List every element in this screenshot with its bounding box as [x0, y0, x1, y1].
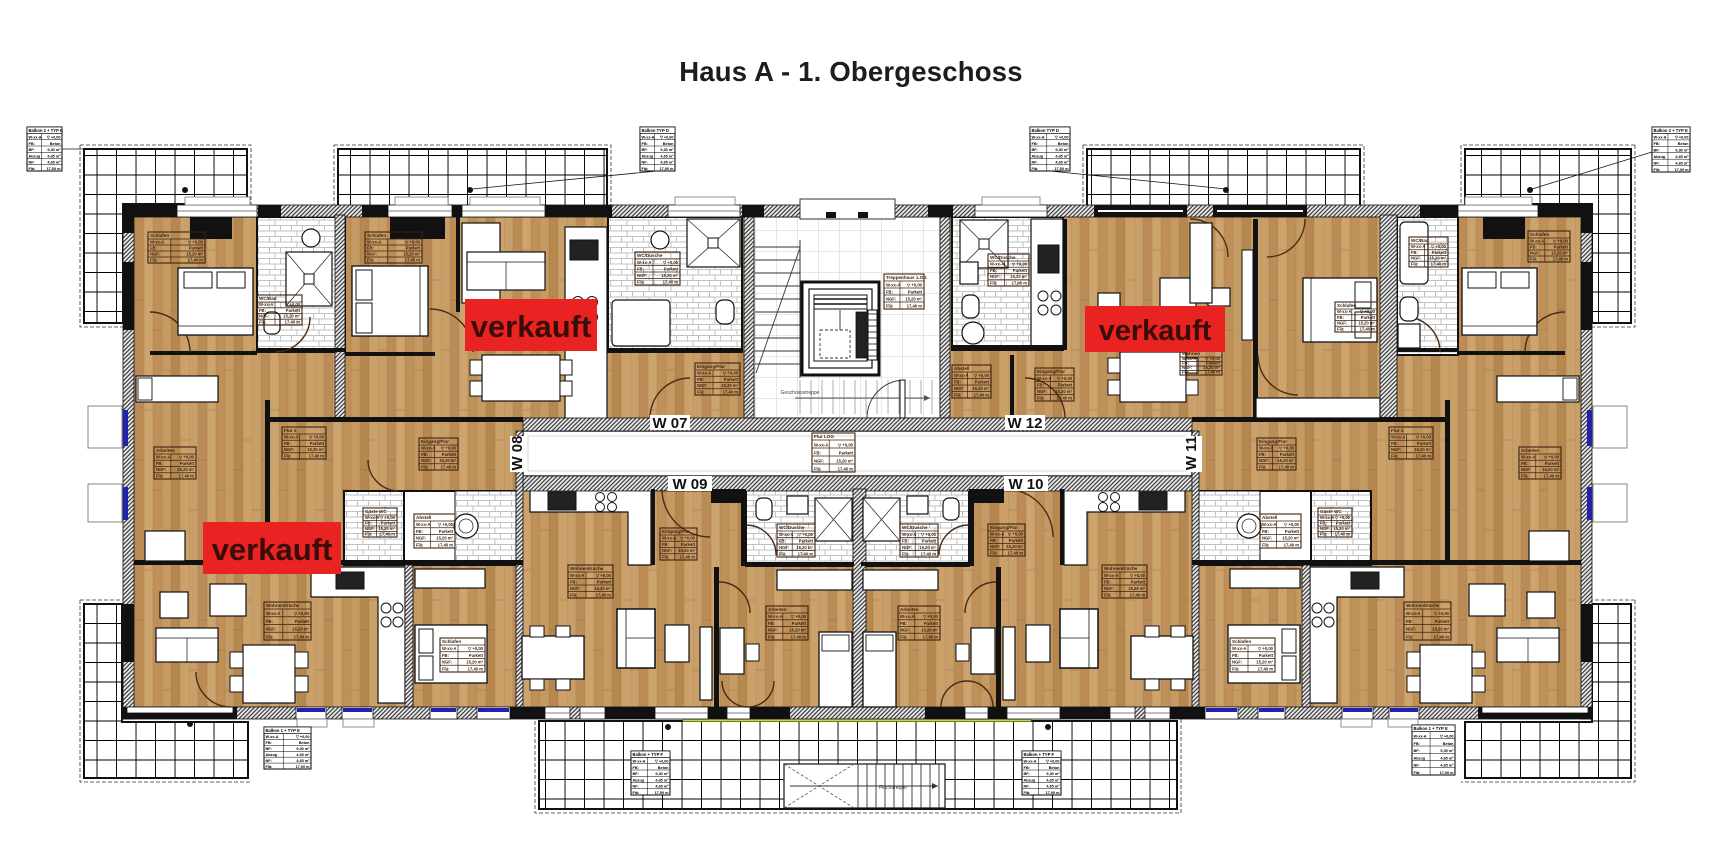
svg-text:Flä:: Flä:: [990, 280, 997, 285]
svg-text:FB:: FB:: [421, 452, 428, 457]
svg-text:Abzug: Abzug: [266, 753, 278, 757]
svg-text:17,40 m: 17,40 m: [723, 389, 739, 394]
svg-text:Schlafen: Schlafen: [150, 233, 169, 238]
svg-text:▽ +0,00: ▽ +0,00: [437, 522, 454, 527]
svg-text:▽ +0,00: ▽ +0,00: [1278, 446, 1295, 451]
svg-text:Parkett: Parkett: [189, 245, 204, 250]
svg-text:15,20 m²: 15,20 m²: [905, 296, 922, 301]
svg-text:Flä:: Flä:: [266, 765, 273, 769]
svg-text:NGF:: NGF:: [902, 545, 912, 550]
svg-text:NGF:: NGF:: [990, 274, 1000, 279]
svg-text:FB:: FB:: [1037, 382, 1044, 387]
svg-text:▽ +0,00: ▽ +0,00: [1045, 760, 1060, 764]
svg-text:BF:: BF:: [1414, 749, 1420, 753]
svg-text:15,20 m²: 15,20 m²: [436, 536, 453, 541]
svg-text:Eingang/Flur: Eingang/Flur: [421, 439, 449, 444]
svg-text:4,65 m²: 4,65 m²: [1675, 155, 1689, 159]
svg-text:Parkett: Parkett: [681, 542, 696, 547]
svg-text:BF:: BF:: [1654, 149, 1660, 153]
svg-text:15,20 m²: 15,20 m²: [1128, 586, 1145, 591]
svg-text:▽ +0,00: ▽ +0,00: [1674, 136, 1689, 140]
svg-text:Abstell: Abstell: [1262, 515, 1277, 520]
svg-text:4,65 m²: 4,65 m²: [1046, 785, 1060, 789]
svg-text:Beton: Beton: [658, 766, 669, 770]
svg-text:Beton: Beton: [1678, 142, 1689, 146]
svg-text:15,20 m²: 15,20 m²: [1282, 536, 1299, 541]
svg-text:Beton: Beton: [50, 142, 61, 146]
svg-text:15,20 m²: 15,20 m²: [721, 383, 738, 388]
svg-text:▽ +0,00: ▽ +0,00: [662, 260, 679, 265]
svg-text:WC/Dusche: WC/Dusche: [902, 525, 928, 530]
svg-text:15,20 m²: 15,20 m²: [466, 660, 483, 665]
svg-text:W-xx-A: W-xx-A: [284, 435, 298, 440]
svg-text:NGF:: NGF:: [150, 251, 160, 256]
svg-text:17,00 m: 17,00 m: [1675, 168, 1690, 172]
svg-text:15,20 m²: 15,20 m²: [921, 628, 938, 633]
svg-text:Flä:: Flä:: [1262, 542, 1269, 547]
svg-text:▽ +0,00: ▽ +0,00: [404, 239, 421, 244]
svg-text:15,20 m²: 15,20 m²: [919, 545, 936, 550]
svg-text:▽ +0,00: ▽ +0,00: [790, 614, 807, 619]
svg-text:4,65 m²: 4,65 m²: [1055, 154, 1069, 158]
svg-text:▽ +0,00: ▽ +0,00: [922, 614, 939, 619]
svg-text:Flä:: Flä:: [990, 550, 997, 555]
svg-text:Parkett: Parkett: [1432, 250, 1447, 255]
svg-text:NGF:: NGF:: [814, 458, 824, 463]
svg-text:▽ +0,00: ▽ +0,00: [467, 646, 484, 651]
svg-text:17,00 m: 17,00 m: [1440, 771, 1455, 775]
svg-text:17,40 m: 17,40 m: [1553, 256, 1569, 261]
svg-text:Balkon 2 + TYP E: Balkon 2 + TYP E: [1654, 128, 1688, 133]
svg-text:Flä:: Flä:: [1032, 167, 1039, 171]
svg-text:FB:: FB:: [150, 245, 157, 250]
svg-text:Flä:: Flä:: [637, 279, 644, 284]
svg-text:17,40 m: 17,40 m: [1130, 592, 1146, 597]
svg-text:Balkon 1 + TYP E: Balkon 1 + TYP E: [266, 728, 300, 733]
svg-text:▽ +0,00: ▽ +0,00: [1433, 611, 1450, 616]
svg-text:17,40 m: 17,40 m: [680, 554, 696, 559]
svg-text:BF:: BF:: [1032, 148, 1038, 152]
svg-text:15,20 m²: 15,20 m²: [1006, 544, 1023, 549]
svg-text:Geschossstreppe: Geschossstreppe: [781, 390, 820, 396]
svg-text:Eingang/Flur: Eingang/Flur: [1037, 369, 1065, 374]
svg-text:FB:: FB:: [266, 741, 272, 745]
svg-text:Haus A - 1. Obergeschoss: Haus A - 1. Obergeschoss: [679, 56, 1023, 87]
svg-text:9,30 m²: 9,30 m²: [1046, 772, 1060, 776]
svg-text:Flä:: Flä:: [416, 542, 423, 547]
svg-text:15,20 m²: 15,20 m²: [1542, 467, 1559, 472]
svg-text:W-xx-A: W-xx-A: [1521, 455, 1535, 460]
svg-text:W-xx-A: W-xx-A: [697, 371, 711, 376]
svg-text:4,65 m²: 4,65 m²: [655, 778, 669, 782]
svg-text:NGF:: NGF:: [259, 314, 269, 319]
svg-text:Beton: Beton: [299, 741, 310, 745]
svg-text:17,00 m: 17,00 m: [1046, 791, 1061, 795]
svg-text:Flä:: Flä:: [1654, 168, 1661, 172]
svg-text:FB:: FB:: [900, 621, 907, 626]
svg-text:▽ +0,00: ▽ +0,00: [837, 442, 854, 447]
svg-text:FB:: FB:: [1391, 441, 1398, 446]
svg-text:Parkett: Parkett: [439, 529, 454, 534]
svg-text:W-xx-A: W-xx-A: [266, 735, 279, 739]
svg-text:Schlafen: Schlafen: [367, 233, 386, 238]
svg-text:FB:: FB:: [156, 461, 163, 466]
svg-text:▽ +0,00: ▽ +0,00: [293, 611, 310, 616]
svg-text:NGF:: NGF:: [900, 628, 910, 633]
svg-text:9,30 m²: 9,30 m²: [1675, 149, 1689, 153]
svg-text:▽ +0,00: ▽ +0,00: [1334, 515, 1351, 520]
svg-text:4,65 m²: 4,65 m²: [47, 161, 61, 165]
svg-text:Parkett: Parkett: [1280, 452, 1295, 457]
svg-text:17,40 m: 17,40 m: [1544, 473, 1560, 478]
svg-text:17,40 m: 17,40 m: [1258, 666, 1274, 671]
svg-text:Flä:: Flä:: [1530, 256, 1537, 261]
svg-text:Parkett: Parkett: [1545, 461, 1560, 466]
svg-text:▽ +0,00: ▽ +0,00: [973, 373, 990, 378]
svg-text:NGF:: NGF:: [954, 386, 964, 391]
svg-text:NGF:: NGF:: [416, 536, 426, 541]
svg-text:15,20 m²: 15,20 m²: [1432, 627, 1449, 632]
svg-text:Eingang/Flur: Eingang/Flur: [1259, 439, 1287, 444]
svg-text:BF:: BF:: [633, 772, 639, 776]
svg-text:17,40 m: 17,40 m: [907, 303, 923, 308]
svg-text:17,40 m: 17,40 m: [791, 634, 807, 639]
svg-text:Arbeiten: Arbeiten: [768, 607, 787, 612]
svg-text:FB:: FB:: [1406, 619, 1413, 624]
svg-text:Flä:: Flä:: [779, 551, 786, 556]
svg-text:Flä:: Flä:: [662, 554, 669, 559]
svg-text:4,65 m²: 4,65 m²: [660, 154, 674, 158]
svg-text:FB:: FB:: [990, 268, 997, 273]
svg-text:FB:: FB:: [259, 308, 266, 313]
svg-text:NF:: NF:: [1654, 161, 1660, 165]
svg-text:FB:: FB:: [1414, 742, 1420, 746]
svg-text:Flä:: Flä:: [442, 666, 449, 671]
svg-text:Beton: Beton: [1049, 766, 1060, 770]
svg-text:▽ +0,00: ▽ +0,00: [679, 536, 696, 541]
svg-text:▽ +0,00: ▽ +0,00: [379, 515, 396, 520]
svg-text:W-xx-A: W-xx-A: [900, 614, 914, 619]
svg-text:Flä:: Flä:: [886, 303, 893, 308]
svg-text:▽ +0,00: ▽ +0,00: [1011, 262, 1028, 267]
svg-text:NGF:: NGF:: [1391, 447, 1401, 452]
svg-text:9,30 m²: 9,30 m²: [1055, 148, 1069, 152]
svg-text:Beton: Beton: [663, 142, 674, 146]
svg-text:15,20 m²: 15,20 m²: [1055, 389, 1072, 394]
svg-text:NGF:: NGF:: [365, 526, 375, 531]
svg-text:▽ +0,00: ▽ +0,00: [906, 282, 923, 287]
svg-text:17,40 m: 17,40 m: [179, 473, 195, 478]
svg-text:NGF:: NGF:: [1232, 660, 1242, 665]
svg-text:WC/Dusche: WC/Dusche: [779, 525, 805, 530]
svg-text:Abstell: Abstell: [954, 366, 969, 371]
svg-text:NF:: NF:: [1024, 785, 1030, 789]
svg-text:15,20 m²: 15,20 m²: [283, 314, 300, 319]
svg-text:9,30 m²: 9,30 m²: [296, 747, 310, 751]
svg-text:4,65 m²: 4,65 m²: [655, 785, 669, 789]
svg-text:NF:: NF:: [633, 785, 639, 789]
svg-text:4,65 m²: 4,65 m²: [296, 759, 310, 763]
svg-text:Abstell: Abstell: [416, 515, 431, 520]
svg-text:15,20 m²: 15,20 m²: [307, 447, 324, 452]
svg-text:Schlafen: Schlafen: [1530, 232, 1549, 237]
svg-text:W-xx-A: W-xx-A: [1032, 136, 1045, 140]
svg-text:FB:: FB:: [365, 520, 372, 525]
svg-text:Abzug: Abzug: [1414, 756, 1426, 760]
svg-text:▽ +0,00: ▽ +0,00: [1257, 646, 1274, 651]
svg-text:W-xx-A: W-xx-A: [259, 302, 273, 307]
svg-text:17,40 m: 17,40 m: [188, 257, 204, 262]
svg-text:17,40 m: 17,40 m: [309, 453, 325, 458]
svg-text:FB:: FB:: [814, 450, 821, 455]
svg-text:Flä:: Flä:: [29, 167, 36, 171]
svg-text:4,65 m²: 4,65 m²: [1055, 161, 1069, 165]
svg-text:Balkon TYP D: Balkon TYP D: [642, 128, 669, 133]
svg-text:Parkett: Parkett: [381, 520, 396, 525]
svg-text:▽ +0,00: ▽ +0,00: [1439, 735, 1454, 739]
svg-text:W-xx-A: W-xx-A: [1414, 735, 1427, 739]
svg-text:FB:: FB:: [1032, 142, 1038, 146]
svg-text:FB:: FB:: [570, 579, 577, 584]
svg-text:W-xx-A: W-xx-A: [150, 239, 164, 244]
svg-text:NGF:: NGF:: [421, 458, 431, 463]
svg-text:▽ +0,00: ▽ +0,00: [797, 532, 814, 537]
svg-text:W-xx-A: W-xx-A: [902, 532, 916, 537]
svg-text:WC/Dusche: WC/Dusche: [637, 253, 663, 258]
svg-text:▽ +0,00: ▽ +0,00: [1359, 309, 1376, 314]
svg-text:FB:: FB:: [1654, 142, 1660, 146]
svg-text:15,20 m²: 15,20 m²: [378, 526, 395, 531]
svg-text:Parkett: Parkett: [792, 621, 807, 626]
svg-text:17,40 m: 17,40 m: [1279, 464, 1295, 469]
svg-text:NGF:: NGF:: [1521, 467, 1531, 472]
svg-text:Flä:: Flä:: [1259, 464, 1266, 469]
svg-text:Flä:: Flä:: [768, 634, 775, 639]
svg-text:W-xx-A: W-xx-A: [1037, 376, 1051, 381]
svg-text:Flä:: Flä:: [642, 167, 649, 171]
svg-text:Arbeiten: Arbeiten: [900, 607, 919, 612]
svg-text:Parkett: Parkett: [1361, 315, 1376, 320]
svg-text:Treppenhaus 1.OG: Treppenhaus 1.OG: [886, 275, 927, 280]
svg-text:W 10: W 10: [1008, 476, 1043, 493]
svg-text:W-xx-A: W-xx-A: [954, 373, 968, 378]
svg-text:▽ +0,00: ▽ +0,00: [1283, 522, 1300, 527]
svg-text:W 11: W 11: [1183, 436, 1200, 470]
svg-text:▽ +0,00: ▽ +0,00: [187, 239, 204, 244]
svg-text:FB:: FB:: [642, 142, 648, 146]
svg-text:BF:: BF:: [266, 747, 272, 751]
svg-text:WC/Dusche: WC/Dusche: [990, 255, 1016, 260]
svg-text:Flä:: Flä:: [421, 464, 428, 469]
svg-text:Flä:: Flä:: [1391, 453, 1398, 458]
svg-text:Flur 2: Flur 2: [284, 428, 297, 433]
svg-text:NGF:: NGF:: [1530, 250, 1540, 255]
svg-text:17,40 m: 17,40 m: [1360, 326, 1376, 331]
svg-text:Eingang/Flur: Eingang/Flur: [662, 529, 690, 534]
svg-text:Flä:: Flä:: [1414, 771, 1421, 775]
svg-text:4,65 m²: 4,65 m²: [1046, 778, 1060, 782]
svg-text:verkauft: verkauft: [212, 532, 333, 567]
svg-text:17,40 m: 17,40 m: [838, 466, 854, 471]
svg-text:Parkett: Parkett: [310, 441, 325, 446]
svg-text:W-xx-A: W-xx-A: [156, 455, 170, 460]
svg-text:Eingang/Flur: Eingang/Flur: [990, 525, 1018, 530]
svg-text:W-xx-A: W-xx-A: [1232, 646, 1246, 651]
svg-text:W-xx-A: W-xx-A: [642, 136, 655, 140]
svg-text:17,40 m: 17,40 m: [1205, 369, 1221, 374]
svg-text:Parkett: Parkett: [1009, 538, 1024, 543]
svg-text:Flur 2: Flur 2: [1391, 428, 1404, 433]
svg-text:W-xx-A: W-xx-A: [367, 239, 381, 244]
svg-text:W-xx-A: W-xx-A: [29, 136, 42, 140]
svg-text:Flä:: Flä:: [1337, 326, 1344, 331]
svg-text:17,40 m: 17,40 m: [596, 592, 612, 597]
svg-text:Parkett: Parkett: [1259, 653, 1274, 658]
svg-text:Parkett: Parkett: [180, 461, 195, 466]
svg-text:Flä:: Flä:: [902, 551, 909, 556]
svg-text:Parkett: Parkett: [799, 538, 814, 543]
svg-text:Parkett: Parkett: [1285, 529, 1300, 534]
svg-text:17,00 m: 17,00 m: [296, 765, 311, 769]
svg-text:17,40 m: 17,40 m: [380, 531, 396, 536]
svg-text:FB:: FB:: [29, 142, 35, 146]
svg-text:15,20 m²: 15,20 m²: [1358, 321, 1375, 326]
svg-text:FB:: FB:: [637, 266, 644, 271]
svg-text:W-xx-A: W-xx-A: [416, 522, 430, 527]
svg-text:Parkett: Parkett: [664, 266, 679, 271]
svg-text:NF:: NF:: [29, 161, 35, 165]
svg-text:W-xx-A: W-xx-A: [1411, 244, 1425, 249]
svg-text:NGF:: NGF:: [367, 251, 377, 256]
svg-text:W-xx-A: W-xx-A: [570, 573, 584, 578]
svg-text:W-xx-A: W-xx-A: [266, 611, 280, 616]
svg-text:Flur LOG: Flur LOG: [814, 434, 834, 439]
svg-text:FB:: FB:: [1104, 579, 1111, 584]
svg-text:Balkon 2 + TYP E: Balkon 2 + TYP E: [29, 128, 63, 133]
svg-text:17,40 m: 17,40 m: [1434, 634, 1450, 639]
svg-text:17,40 m: 17,40 m: [1416, 453, 1432, 458]
svg-text:17,40 m: 17,40 m: [1008, 550, 1024, 555]
svg-text:17,40 m: 17,40 m: [405, 257, 421, 262]
svg-text:NGF:: NGF:: [1406, 627, 1416, 632]
svg-text:Parkett: Parkett: [1435, 619, 1450, 624]
svg-text:NGF:: NGF:: [768, 628, 778, 633]
svg-text:Wohnen/Küche: Wohnen/Küche: [1406, 603, 1440, 608]
svg-text:Flä:: Flä:: [367, 257, 374, 262]
svg-text:Parkett: Parkett: [597, 579, 612, 584]
svg-text:NGF:: NGF:: [697, 383, 707, 388]
svg-text:Wohnen/Küche: Wohnen/Küche: [266, 603, 300, 608]
svg-text:▽ +0,00: ▽ +0,00: [595, 573, 612, 578]
svg-text:NGF:: NGF:: [1411, 256, 1421, 261]
svg-text:17,40 m: 17,40 m: [1431, 261, 1447, 266]
svg-text:15,20 m²: 15,20 m²: [789, 628, 806, 633]
svg-text:Flä:: Flä:: [1232, 666, 1239, 671]
svg-text:9,30 m²: 9,30 m²: [655, 772, 669, 776]
svg-text:FB:: FB:: [1232, 653, 1239, 658]
svg-text:WC/Bad: WC/Bad: [1411, 238, 1429, 243]
svg-text:17,40 m: 17,40 m: [468, 666, 484, 671]
svg-text:Flä:: Flä:: [1411, 261, 1418, 266]
svg-text:Parkett: Parkett: [922, 538, 937, 543]
svg-text:15,20 m²: 15,20 m²: [1414, 447, 1431, 452]
svg-text:Flä:: Flä:: [633, 791, 640, 795]
svg-text:FB:: FB:: [1337, 315, 1344, 320]
svg-text:Parkett: Parkett: [975, 379, 990, 384]
svg-text:Flä:: Flä:: [1521, 473, 1528, 478]
svg-text:FB:: FB:: [1320, 520, 1327, 525]
svg-text:Flä:: Flä:: [266, 634, 273, 639]
svg-text:Parkett: Parkett: [1013, 268, 1028, 273]
svg-text:▽ +0,00: ▽ +0,00: [46, 136, 61, 140]
svg-text:Parkett: Parkett: [1058, 382, 1073, 387]
svg-text:W-xx-A: W-xx-A: [1104, 573, 1118, 578]
svg-text:17,00 m: 17,00 m: [655, 791, 670, 795]
svg-text:NGF:: NGF:: [637, 273, 647, 278]
svg-text:15,20 m²: 15,20 m²: [439, 458, 456, 463]
svg-text:▽ +0,00: ▽ +0,00: [1007, 532, 1024, 537]
svg-text:Flä:: Flä:: [1182, 369, 1189, 374]
svg-text:Flä:: Flä:: [365, 531, 372, 536]
svg-text:FB:: FB:: [954, 379, 961, 384]
svg-text:15,20 m²: 15,20 m²: [1277, 458, 1294, 463]
svg-text:FB:: FB:: [442, 653, 449, 658]
svg-text:NF:: NF:: [266, 759, 272, 763]
svg-text:Flä:: Flä:: [156, 473, 163, 478]
svg-text:▽ +0,00: ▽ +0,00: [1056, 376, 1073, 381]
svg-text:17,40 m: 17,40 m: [663, 279, 679, 284]
svg-text:17,00 m: 17,00 m: [1055, 167, 1070, 171]
svg-text:9,30 m²: 9,30 m²: [660, 148, 674, 152]
svg-text:Beton: Beton: [1058, 142, 1069, 146]
svg-text:FB:: FB:: [1530, 244, 1537, 249]
svg-text:Flä:: Flä:: [259, 319, 266, 324]
svg-text:W-xx-A: W-xx-A: [886, 282, 900, 287]
svg-text:FB:: FB:: [768, 621, 775, 626]
svg-text:FB:: FB:: [1024, 766, 1030, 770]
svg-text:▽ +0,00: ▽ +0,00: [659, 136, 674, 140]
svg-text:W-xx-A: W-xx-A: [365, 515, 379, 520]
svg-text:15,20 m²: 15,20 m²: [403, 251, 420, 256]
svg-text:Parkett: Parkett: [1336, 520, 1351, 525]
svg-text:15,20 m²: 15,20 m²: [661, 273, 678, 278]
svg-text:NF:: NF:: [642, 161, 648, 165]
svg-text:15,20 m²: 15,20 m²: [292, 627, 309, 632]
svg-text:BF:: BF:: [29, 148, 35, 152]
svg-text:W-xx-A: W-xx-A: [1406, 611, 1420, 616]
svg-text:Parkett: Parkett: [286, 308, 301, 313]
svg-text:Eingang/Flur: Eingang/Flur: [697, 364, 725, 369]
svg-text:W 12: W 12: [1007, 415, 1042, 432]
svg-text:Parkett: Parkett: [1554, 244, 1569, 249]
svg-text:W 08: W 08: [509, 435, 526, 470]
svg-text:Flä:: Flä:: [954, 392, 961, 397]
svg-text:Parkett: Parkett: [469, 653, 484, 658]
svg-text:4,65 m²: 4,65 m²: [47, 154, 61, 158]
svg-text:▽ +0,00: ▽ +0,00: [1129, 573, 1146, 578]
svg-text:verkauft: verkauft: [471, 309, 592, 344]
svg-text:▽ +0,00: ▽ +0,00: [308, 435, 325, 440]
svg-text:Abzug: Abzug: [29, 154, 41, 158]
svg-text:W-xx-A: W-xx-A: [1024, 760, 1037, 764]
svg-text:W 07: W 07: [652, 415, 687, 432]
svg-text:W-xx-A: W-xx-A: [990, 532, 1004, 537]
svg-text:Parkett: Parkett: [1417, 441, 1432, 446]
svg-text:4,65 m²: 4,65 m²: [296, 753, 310, 757]
svg-text:Parkett: Parkett: [406, 245, 421, 250]
svg-text:15,20 m²: 15,20 m²: [1010, 274, 1027, 279]
svg-text:Balkon + TYP F: Balkon + TYP F: [633, 752, 664, 757]
